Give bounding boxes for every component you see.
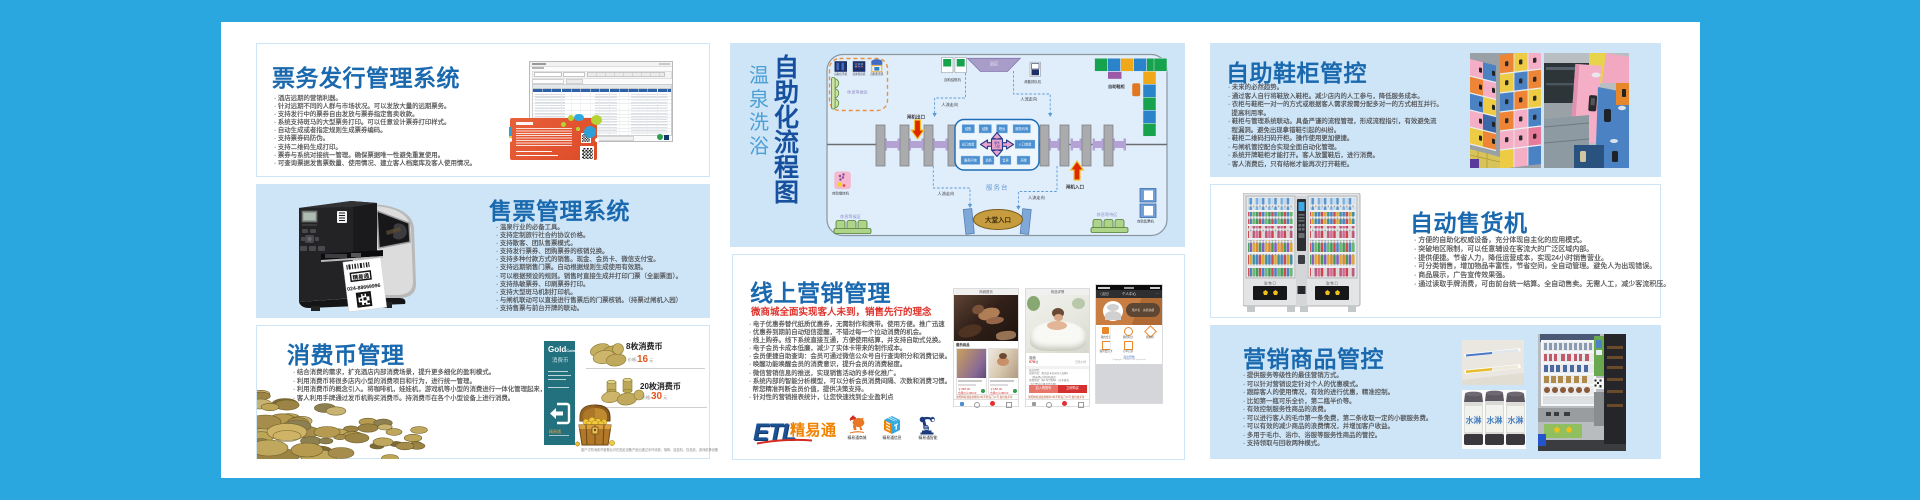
svg-text:结账: 结账 (982, 126, 989, 131)
svg-text:休息等待区: 休息等待区 (1097, 211, 1118, 218)
svg-text:人流走向: 人流走向 (938, 190, 955, 197)
svg-text:人流走向: 人流走向 (1020, 96, 1037, 103)
svg-text:自助出币机: 自助出币机 (834, 72, 847, 76)
svg-text:浴区: 浴区 (990, 61, 999, 68)
svg-text:取 物 口: 取 物 口 (1264, 281, 1275, 286)
svg-text:自助结账机: 自助结账机 (944, 77, 962, 82)
svg-text:自助售票机: 自助售票机 (1137, 219, 1155, 224)
svg-text:人流走向: 人流走向 (941, 101, 958, 108)
svg-text:吧台: 吧台 (999, 126, 1005, 131)
svg-text:服务问询: 服务问询 (964, 158, 977, 163)
svg-text:结账: 结账 (965, 126, 972, 131)
svg-text:出口查验: 出口查验 (962, 142, 976, 147)
svg-text:自助售票机: 自助售票机 (870, 72, 883, 76)
svg-text:售卖: 售卖 (1002, 158, 1009, 163)
svg-text:服务问询: 服务问询 (1015, 126, 1028, 131)
svg-text:水淋: 水淋 (1486, 415, 1503, 425)
svg-text:人员: 人员 (994, 145, 1000, 149)
svg-text:自助缴挂机: 自助缴挂机 (832, 191, 850, 196)
svg-text:大堂入口: 大堂入口 (985, 215, 1011, 224)
svg-text:闸机入口: 闸机入口 (1066, 184, 1084, 191)
svg-text:水淋: 水淋 (1465, 415, 1482, 425)
svg-text:疏散排队机: 疏散排队机 (1024, 79, 1042, 84)
svg-text:入口查验: 入口查验 (1019, 142, 1033, 147)
svg-text:话务: 话务 (985, 158, 992, 163)
svg-text:自助售货机: 自助售货机 (853, 72, 866, 76)
svg-text:服务台: 服务台 (986, 183, 1009, 192)
svg-text:休息等候区: 休息等候区 (847, 89, 868, 96)
svg-text:水淋: 水淋 (1507, 415, 1524, 425)
svg-text:开牌: 开牌 (1020, 158, 1027, 163)
svg-text:人流走向: 人流走向 (1028, 194, 1045, 201)
svg-text:休息等候区: 休息等候区 (840, 213, 861, 220)
svg-text:自助鞋柜: 自助鞋柜 (1108, 83, 1126, 90)
svg-text:取 物 口: 取 物 口 (1326, 281, 1337, 286)
